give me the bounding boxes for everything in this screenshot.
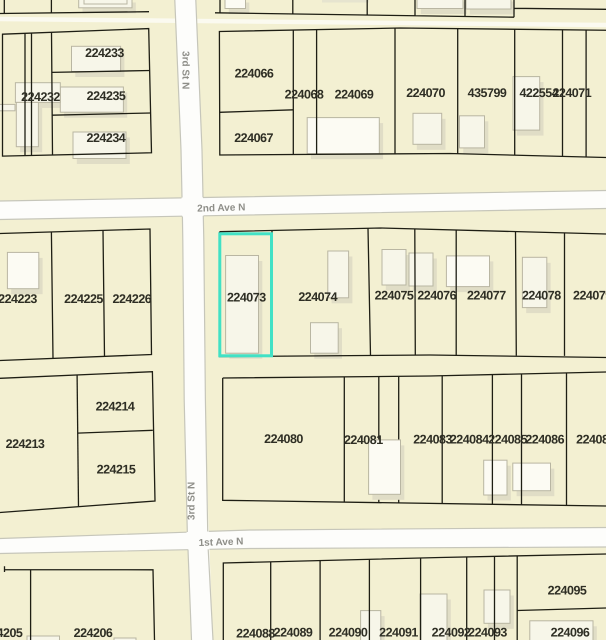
svg-text:224067: 224067 [234, 131, 273, 145]
svg-text:224087: 224087 [576, 433, 606, 447]
svg-text:224215: 224215 [97, 463, 136, 477]
svg-text:224074: 224074 [298, 290, 337, 304]
svg-text:435799: 435799 [468, 86, 507, 100]
svg-text:224073: 224073 [227, 291, 266, 305]
svg-text:224090: 224090 [329, 626, 368, 640]
svg-text:224093: 224093 [468, 626, 507, 640]
svg-text:224096: 224096 [551, 625, 590, 639]
svg-text:224080: 224080 [264, 432, 303, 446]
svg-text:2nd Ave N: 2nd Ave N [197, 202, 245, 214]
svg-text:224232: 224232 [21, 90, 60, 104]
svg-text:224078: 224078 [522, 289, 561, 303]
svg-text:224088: 224088 [236, 627, 275, 640]
svg-text:224081: 224081 [344, 433, 383, 447]
svg-text:224071: 224071 [552, 86, 591, 100]
svg-text:224085: 224085 [488, 433, 527, 447]
svg-text:224089: 224089 [274, 626, 313, 640]
svg-text:224092: 224092 [432, 626, 471, 640]
svg-text:224068: 224068 [285, 88, 324, 102]
svg-text:224083: 224083 [413, 433, 452, 447]
svg-text:224226: 224226 [113, 292, 152, 306]
svg-text:224235: 224235 [87, 89, 126, 103]
svg-text:1st Ave N: 1st Ave N [198, 536, 243, 549]
svg-text:224091: 224091 [379, 626, 418, 640]
svg-text:224069: 224069 [335, 88, 374, 102]
svg-text:224095: 224095 [548, 584, 587, 598]
svg-text:224070: 224070 [406, 86, 445, 100]
svg-text:224234: 224234 [87, 131, 126, 145]
svg-text:224076: 224076 [417, 289, 456, 303]
svg-text:3rd St N: 3rd St N [179, 51, 190, 89]
svg-text:224079: 224079 [573, 289, 606, 303]
svg-text:224084: 224084 [450, 433, 489, 447]
svg-text:224213: 224213 [6, 437, 45, 451]
svg-text:224086: 224086 [525, 433, 564, 447]
svg-text:224066: 224066 [235, 66, 274, 80]
svg-text:224223: 224223 [0, 292, 37, 306]
svg-text:224075: 224075 [375, 289, 414, 303]
svg-text:224225: 224225 [64, 292, 103, 306]
svg-text:224233: 224233 [85, 46, 124, 60]
svg-text:3rd St N: 3rd St N [187, 482, 198, 520]
svg-text:224206: 224206 [74, 626, 113, 640]
svg-text:224077: 224077 [467, 289, 506, 303]
svg-text:224214: 224214 [96, 399, 135, 413]
svg-text:224205: 224205 [0, 626, 23, 640]
